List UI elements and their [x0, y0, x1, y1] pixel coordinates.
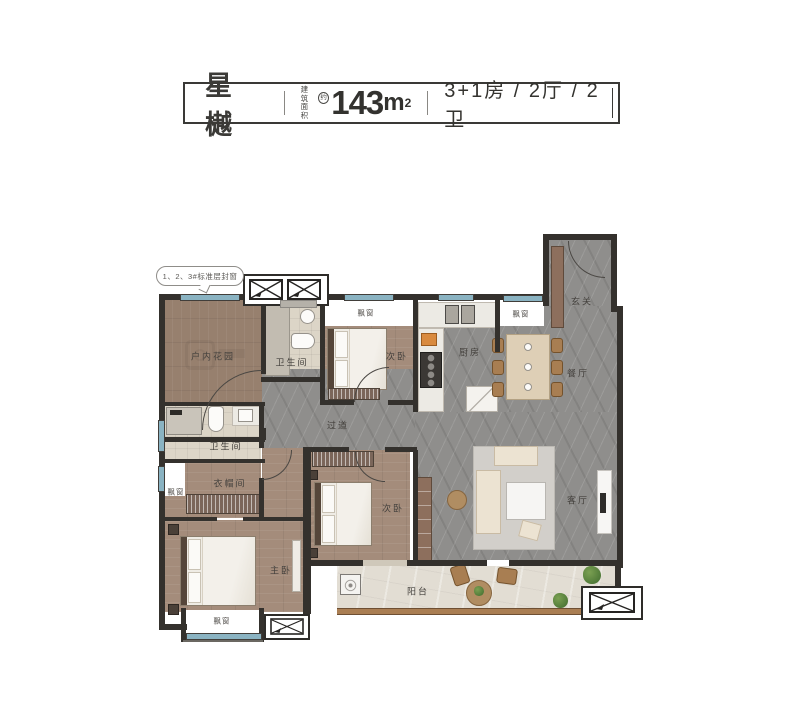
window [344, 294, 394, 301]
label-cloakroom: 衣帽间 [213, 477, 246, 490]
wall-segment [307, 560, 623, 566]
window [158, 420, 165, 452]
dining-chair [551, 382, 563, 397]
label-living: 客厅 [567, 494, 589, 507]
side-table [447, 490, 467, 510]
sofa [494, 446, 538, 466]
wall-segment [320, 400, 354, 405]
plant-icon [553, 593, 568, 608]
wall-segment [495, 294, 500, 352]
bed-master [180, 536, 256, 606]
header-divider [284, 91, 285, 115]
kitchen-sink [445, 305, 459, 324]
header-divider [427, 91, 428, 115]
place-setting [524, 343, 532, 351]
standing-mirror [292, 540, 301, 592]
kitchen-utensils [421, 333, 437, 346]
window [158, 466, 165, 492]
wall-segment [159, 459, 265, 463]
dining-chair [551, 360, 563, 375]
label-hallway: 过道 [327, 419, 349, 432]
area-prefix: 建筑 面积 [301, 86, 316, 120]
label-kitchen: 厨房 [459, 346, 481, 359]
balcony-door-opening [487, 560, 509, 566]
window [503, 295, 543, 302]
unit-spec: 3+1房 / 2厅 / 2卫 [444, 74, 618, 132]
plant-icon [583, 566, 601, 584]
label-bay-window-4: 飘窗 [214, 616, 231, 627]
wall-segment [307, 447, 349, 452]
window [438, 294, 474, 301]
area-superscript: 2 [405, 96, 412, 110]
wall-segment [543, 234, 617, 240]
label-master: 主卧 [270, 564, 292, 577]
floorplan-page: 星樾 建筑 面积 约 143m2 3+1房 / 2厅 / 2卫 [0, 0, 800, 725]
elevator-icon [249, 279, 283, 300]
coffee-table [506, 482, 546, 520]
wall-segment [261, 294, 266, 374]
window [186, 633, 262, 640]
nightstand [168, 604, 179, 615]
wall-segment [261, 377, 325, 382]
area-approx-mark: 约 [318, 92, 329, 104]
header-end-line [612, 88, 613, 118]
washing-machine [340, 574, 361, 595]
area-block: 建筑 面积 约 143m2 [301, 84, 412, 122]
place-setting [524, 363, 532, 371]
plant-icon [474, 586, 484, 596]
dining-chair [492, 382, 504, 397]
label-indoor-garden: 户内花园 [191, 350, 235, 363]
sofa [476, 470, 501, 534]
wall-segment [303, 447, 311, 564]
label-bathroom-1: 卫生间 [275, 356, 308, 369]
label-balcony: 阳台 [407, 585, 429, 598]
label-bedroom-1: 次卧 [386, 350, 408, 363]
bay-outer-line [183, 640, 263, 642]
shower-head-icon [170, 410, 182, 415]
label-bay-window-3: 飘窗 [168, 487, 185, 498]
area-value: 143 [331, 84, 383, 122]
storage-cabinet [417, 477, 432, 563]
header: 星樾 建筑 面积 约 143m2 3+1房 / 2厅 / 2卫 [183, 82, 620, 124]
dining-chair [551, 338, 563, 353]
wardrobe-cloakroom [186, 494, 262, 514]
window [180, 294, 240, 301]
label-bay-window-2: 飘窗 [513, 309, 530, 320]
label-bathroom-2: 卫生间 [209, 440, 242, 453]
shoe-cabinet [551, 246, 564, 328]
kitchen-sink [461, 305, 475, 324]
project-title: 星樾 [205, 64, 268, 142]
lobby-step [280, 300, 317, 308]
outdoor-chair [496, 567, 518, 586]
wall-segment [303, 562, 311, 614]
wall-segment [259, 478, 264, 520]
nightstand [168, 524, 179, 535]
wall-segment [159, 517, 217, 521]
label-bay-window-1: 飘窗 [358, 308, 375, 319]
wall-segment [617, 306, 623, 568]
area-unit: m [383, 89, 404, 117]
callout-bubble: 1、2、3#标准层封窗 [156, 266, 244, 286]
wall-segment [543, 234, 549, 306]
bed-bedroom-2 [314, 482, 372, 546]
dining-chair [492, 360, 504, 375]
wall-segment [413, 294, 418, 412]
elevator-icon [287, 279, 321, 300]
shaft-icon [270, 618, 304, 635]
shaft-icon [589, 592, 635, 613]
wall-segment [611, 234, 617, 312]
stove-icon [420, 352, 442, 388]
balcony-door-threshold [363, 560, 407, 566]
label-bedroom-2: 次卧 [382, 502, 404, 515]
wall-segment [413, 450, 418, 562]
wall-segment [385, 447, 417, 452]
balcony-railing [337, 608, 619, 615]
label-dining: 餐厅 [567, 367, 589, 380]
area-prefix-line1: 建筑 [301, 86, 316, 103]
area-prefix-line2: 面积 [301, 103, 316, 120]
wash-basin [300, 309, 315, 324]
tv-icon [600, 493, 606, 513]
wall-segment [243, 517, 307, 521]
place-setting [524, 383, 532, 391]
toilet-icon [291, 333, 315, 349]
wall-segment [159, 624, 187, 630]
label-foyer: 玄关 [571, 295, 593, 308]
wall-segment [320, 294, 325, 404]
